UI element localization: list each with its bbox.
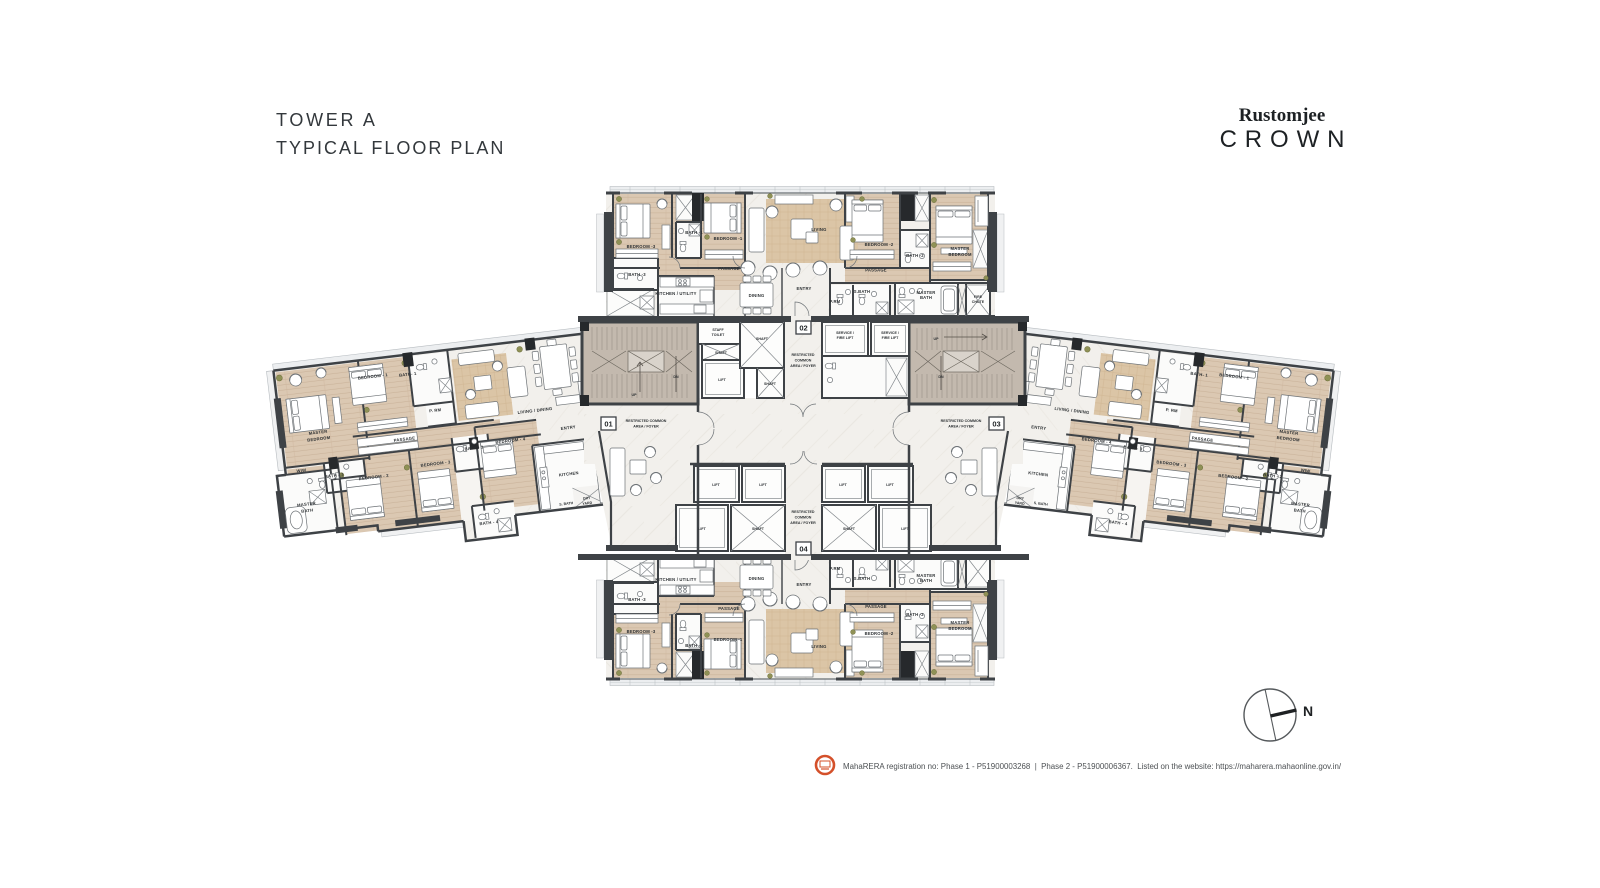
svg-text:S.BATH: S.BATH xyxy=(854,576,870,581)
svg-text:AREA / FOYER: AREA / FOYER xyxy=(790,364,816,368)
svg-text:03: 03 xyxy=(992,420,1000,429)
svg-text:BEDROOM: BEDROOM xyxy=(948,626,972,631)
svg-text:SHAFT: SHAFT xyxy=(843,527,856,531)
svg-text:BATH: BATH xyxy=(920,578,932,583)
svg-text:P.RM: P.RM xyxy=(830,299,841,304)
svg-text:BEDROOM -2: BEDROOM -2 xyxy=(865,631,894,636)
svg-text:LIFT: LIFT xyxy=(718,378,726,382)
svg-text:PASSAGE: PASSAGE xyxy=(718,266,740,271)
svg-text:FIRE LIFT: FIRE LIFT xyxy=(837,336,855,340)
svg-text:AREA / FOYER: AREA / FOYER xyxy=(790,521,816,525)
svg-text:ENTRY: ENTRY xyxy=(796,582,811,587)
svg-text:KITCHEN / UTILITY: KITCHEN / UTILITY xyxy=(655,291,696,296)
svg-text:BEDROOM -2: BEDROOM -2 xyxy=(865,242,894,247)
svg-text:LIFT: LIFT xyxy=(759,483,767,487)
svg-text:BEDROOM -3: BEDROOM -3 xyxy=(627,629,656,634)
svg-text:CROWN: CROWN xyxy=(1220,126,1353,153)
svg-text:SERVICE /: SERVICE / xyxy=(836,331,854,335)
svg-text:BATH -1: BATH -1 xyxy=(685,643,703,648)
svg-text:PASSAGE: PASSAGE xyxy=(718,606,740,611)
svg-text:LIFT: LIFT xyxy=(839,483,847,487)
svg-text:LIFT: LIFT xyxy=(886,483,894,487)
svg-text:BEDROOM -1: BEDROOM -1 xyxy=(714,236,743,241)
svg-text:BEDROOM -3: BEDROOM -3 xyxy=(627,244,656,249)
svg-text:BATH -2: BATH -2 xyxy=(906,612,924,617)
svg-text:04: 04 xyxy=(799,545,808,554)
svg-text:RESTRICTED COMMON: RESTRICTED COMMON xyxy=(941,419,982,423)
svg-text:LIFT: LIFT xyxy=(901,527,909,531)
svg-text:P.RM: P.RM xyxy=(830,566,841,571)
svg-text:AREA / FOYER: AREA / FOYER xyxy=(633,425,659,429)
svg-text:UP: UP xyxy=(934,337,940,341)
svg-text:SERVICE /: SERVICE / xyxy=(881,331,899,335)
svg-text:SHAFT: SHAFT xyxy=(715,351,728,355)
svg-text:STAFF: STAFF xyxy=(712,328,724,332)
svg-text:TYPICAL FLOOR PLAN: TYPICAL FLOOR PLAN xyxy=(276,138,505,158)
svg-text:BATH -3: BATH -3 xyxy=(628,597,646,602)
svg-text:01: 01 xyxy=(604,420,612,429)
svg-text:BATH -1: BATH -1 xyxy=(685,230,703,235)
svg-text:RESTRICTED: RESTRICTED xyxy=(792,510,815,514)
svg-text:DINING: DINING xyxy=(749,576,765,581)
svg-text:BEDROOM -1: BEDROOM -1 xyxy=(714,637,743,642)
svg-text:PASSAGE: PASSAGE xyxy=(865,268,887,273)
svg-text:BEDROOM: BEDROOM xyxy=(948,252,972,257)
svg-text:TOWER A: TOWER A xyxy=(276,110,378,130)
svg-text:DINING: DINING xyxy=(749,293,765,298)
svg-text:N: N xyxy=(1303,703,1313,719)
svg-text:KITCHEN / UTILITY: KITCHEN / UTILITY xyxy=(655,577,696,582)
svg-text:CHUTE: CHUTE xyxy=(972,300,985,304)
svg-text:MahaRERA registration no: Phas: MahaRERA registration no: Phase 1 - P519… xyxy=(843,762,1342,771)
svg-text:RESTRICTED COMMON: RESTRICTED COMMON xyxy=(626,419,667,423)
svg-text:PASSAGE: PASSAGE xyxy=(865,604,887,609)
svg-text:Rustomjee: Rustomjee xyxy=(1239,105,1326,126)
svg-text:S.BATH: S.BATH xyxy=(854,289,870,294)
svg-text:AREA / FOYER: AREA / FOYER xyxy=(948,425,974,429)
svg-text:SHAFT: SHAFT xyxy=(764,382,777,386)
svg-text:LIVING: LIVING xyxy=(811,227,826,232)
svg-text:BATH: BATH xyxy=(920,295,932,300)
svg-text:FIRE LIFT: FIRE LIFT xyxy=(882,336,900,340)
svg-text:FIRE: FIRE xyxy=(974,295,983,299)
svg-text:COMMON: COMMON xyxy=(795,359,812,363)
svg-text:LIVING: LIVING xyxy=(811,644,826,649)
svg-text:SHAFT: SHAFT xyxy=(752,527,765,531)
svg-text:BATH -3: BATH -3 xyxy=(628,272,646,277)
svg-text:UP: UP xyxy=(632,393,638,397)
svg-text:MASTER: MASTER xyxy=(951,246,970,251)
svg-text:ENTRY: ENTRY xyxy=(796,286,811,291)
svg-text:LIFT: LIFT xyxy=(712,483,720,487)
svg-text:DN: DN xyxy=(938,375,944,379)
svg-text:RESTRICTED: RESTRICTED xyxy=(792,353,815,357)
svg-text:DN: DN xyxy=(673,375,679,379)
svg-text:MASTER: MASTER xyxy=(951,620,970,625)
svg-text:SHAFT: SHAFT xyxy=(756,337,769,341)
svg-text:LIFT: LIFT xyxy=(698,527,706,531)
svg-text:COMMON: COMMON xyxy=(795,516,812,520)
svg-text:02: 02 xyxy=(799,324,807,333)
svg-text:BATH -2: BATH -2 xyxy=(906,253,924,258)
svg-text:TOILET: TOILET xyxy=(712,333,726,337)
